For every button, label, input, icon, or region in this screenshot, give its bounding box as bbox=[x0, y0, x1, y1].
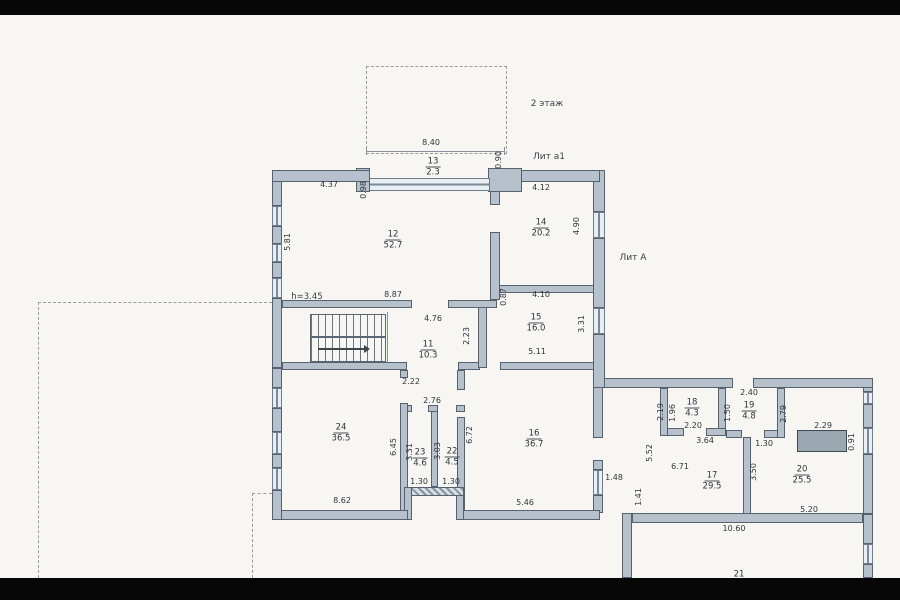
built-in-cabinet bbox=[797, 430, 847, 452]
dimension-label: 2.19 bbox=[657, 403, 665, 421]
window bbox=[863, 544, 873, 564]
window bbox=[272, 468, 282, 490]
room-label-20: 2025.5 bbox=[793, 457, 812, 486]
room-label-16: 1636.7 bbox=[525, 421, 544, 450]
dimension-label: 2.22 bbox=[402, 378, 420, 386]
room-area: 36.5 bbox=[332, 434, 351, 444]
dimension-label: 5.81 bbox=[284, 233, 292, 251]
wall bbox=[272, 368, 282, 388]
wall bbox=[458, 362, 480, 370]
wall bbox=[272, 454, 282, 468]
room-number: 24 bbox=[334, 424, 349, 434]
room-number: 11 bbox=[421, 341, 436, 351]
room-label-15: 1516.0 bbox=[527, 305, 546, 334]
dimension-label: 2.79 bbox=[780, 405, 788, 423]
room-number: 15 bbox=[529, 314, 544, 324]
wall bbox=[863, 454, 873, 514]
dimension-label: 4.12 bbox=[532, 184, 550, 192]
dimension-label: 3.50 bbox=[750, 463, 758, 481]
dimension-label: 1.41 bbox=[635, 488, 643, 506]
room-area: 16.0 bbox=[527, 324, 546, 334]
dimension-label: 10.60 bbox=[723, 525, 746, 533]
room-label-14: 1420.2 bbox=[532, 210, 551, 239]
room-label-12: 1252.7 bbox=[384, 222, 403, 251]
wall bbox=[272, 510, 408, 520]
dimension-label: 6.45 bbox=[390, 438, 398, 456]
wall bbox=[478, 300, 487, 368]
room-area: 36.7 bbox=[525, 440, 544, 450]
dimension-label: 0.98 bbox=[360, 181, 368, 199]
dimension-label: 2.40 bbox=[740, 389, 758, 397]
dimension-label: 1.30 bbox=[442, 478, 460, 486]
wall bbox=[500, 362, 600, 370]
wall bbox=[520, 170, 600, 182]
dimension-label: 4.10 bbox=[532, 291, 550, 299]
floor-plan: 2 этаж Лит а1 Лит А h=3.45 132.31252.714… bbox=[0, 0, 900, 600]
room-area: 29.5 bbox=[703, 482, 722, 492]
dimension-label: 1.50 bbox=[724, 404, 732, 422]
dimension-label: 8.62 bbox=[333, 497, 351, 505]
room-area: 25.5 bbox=[793, 476, 812, 486]
wall bbox=[457, 370, 465, 390]
window bbox=[863, 428, 873, 454]
window bbox=[593, 308, 605, 334]
dimension-label: 3.64 bbox=[696, 437, 714, 445]
dimension-label: 2.20 bbox=[684, 422, 702, 430]
room-number: 23 bbox=[413, 449, 428, 459]
wall bbox=[706, 428, 726, 436]
window bbox=[272, 278, 282, 298]
dimension-label: 1.96 bbox=[669, 404, 677, 422]
dimension-label: 4.76 bbox=[424, 315, 442, 323]
dimension-label: 6.72 bbox=[466, 426, 474, 444]
boundary-dashed-line bbox=[38, 302, 272, 303]
room-number: 19 bbox=[742, 402, 757, 412]
dimension-label: 5.46 bbox=[516, 499, 534, 507]
room-label-11: 1110.3 bbox=[419, 332, 438, 361]
dimension-label: 4.90 bbox=[573, 217, 581, 235]
wall bbox=[488, 168, 522, 192]
floor-note: 2 этаж bbox=[531, 99, 563, 109]
room-area: 2.3 bbox=[426, 168, 441, 178]
letterbox-top-bar bbox=[0, 0, 900, 15]
building-letter-a: Лит А bbox=[620, 253, 647, 263]
dimension-label: 8.40 bbox=[422, 139, 440, 147]
wall bbox=[632, 513, 863, 523]
room-label-23: 234.6 bbox=[413, 440, 428, 469]
dimension-label: 0.87 bbox=[500, 288, 508, 306]
wall bbox=[272, 298, 282, 368]
dimension-label: 0.91 bbox=[848, 433, 856, 451]
wall bbox=[753, 378, 873, 388]
wall bbox=[456, 405, 465, 412]
dimension-label: 5.20 bbox=[800, 506, 818, 514]
dimension-label: 5.11 bbox=[528, 348, 546, 356]
room-area: 4.8 bbox=[742, 412, 757, 422]
boundary-dashed-line bbox=[252, 493, 272, 494]
room-label-24: 2436.5 bbox=[332, 415, 351, 444]
wall bbox=[272, 408, 282, 432]
dimension-label: 5.52 bbox=[646, 444, 654, 462]
dimension-label: 6.71 bbox=[671, 463, 689, 471]
room-label-13: 132.3 bbox=[426, 149, 441, 178]
room-label-17: 1729.5 bbox=[703, 463, 722, 492]
wall bbox=[593, 334, 605, 388]
window bbox=[368, 178, 490, 191]
dimension-label: 0.90 bbox=[495, 151, 503, 169]
dimension-label: 3.31 bbox=[406, 443, 414, 461]
wall bbox=[282, 362, 407, 370]
room-number: 20 bbox=[795, 466, 810, 476]
room-area: 4.5 bbox=[445, 458, 460, 468]
window bbox=[272, 388, 282, 408]
stairs-landing-line bbox=[311, 336, 385, 338]
room-label-18: 184.3 bbox=[685, 390, 700, 419]
staircase bbox=[310, 314, 386, 362]
window bbox=[272, 244, 282, 262]
boundary-dashed-line bbox=[38, 302, 39, 578]
wall bbox=[863, 404, 873, 428]
window bbox=[272, 432, 282, 454]
room-number: 16 bbox=[527, 430, 542, 440]
window bbox=[272, 206, 282, 226]
dimension-label: 4.37 bbox=[320, 181, 338, 189]
dimension-label: 3.03 bbox=[434, 442, 442, 460]
letterbox-bottom-bar bbox=[0, 578, 900, 600]
room-number: 14 bbox=[534, 219, 549, 229]
room-area: 20.2 bbox=[532, 229, 551, 239]
wall bbox=[593, 238, 605, 308]
wall bbox=[458, 510, 600, 520]
room-area: 52.7 bbox=[384, 241, 403, 251]
wall bbox=[863, 514, 873, 544]
dimension-label: 8.87 bbox=[384, 291, 402, 299]
plan-line bbox=[387, 312, 388, 362]
room-area: 4.6 bbox=[413, 459, 428, 469]
wall bbox=[863, 564, 873, 578]
hatched-wall bbox=[404, 487, 464, 496]
wall bbox=[593, 460, 603, 470]
room-number: 22 bbox=[445, 448, 460, 458]
boundary-dashed-line bbox=[252, 493, 253, 578]
ceiling-height-note: h=3.45 bbox=[291, 292, 322, 302]
room-number: 13 bbox=[426, 158, 441, 168]
wall bbox=[448, 300, 497, 308]
wall bbox=[272, 226, 282, 244]
room-number: 12 bbox=[386, 231, 401, 241]
dimension-label: 2.29 bbox=[814, 422, 832, 430]
wall bbox=[272, 490, 282, 520]
dimension-label: 2.23 bbox=[463, 327, 471, 345]
room-number: 18 bbox=[685, 399, 700, 409]
wall bbox=[622, 513, 632, 578]
room-area: 10.3 bbox=[419, 351, 438, 361]
dimension-label: 2.76 bbox=[423, 397, 441, 405]
dimension-label: 1.30 bbox=[410, 478, 428, 486]
wall bbox=[272, 262, 282, 278]
wall bbox=[428, 405, 438, 412]
wall bbox=[726, 430, 742, 438]
room-area: 4.3 bbox=[685, 409, 700, 419]
stairs-direction-arrow bbox=[318, 348, 364, 350]
wall bbox=[603, 378, 733, 388]
window bbox=[593, 470, 603, 495]
dimension-label: 3.31 bbox=[578, 315, 586, 333]
window bbox=[863, 392, 873, 404]
dimension-label: 1.30 bbox=[755, 440, 773, 448]
window bbox=[593, 212, 605, 238]
building-letter-a1: Лит а1 bbox=[533, 152, 565, 162]
dimension-label: 1.48 bbox=[605, 474, 623, 482]
room-label-22: 224.5 bbox=[445, 439, 460, 468]
room-number: 17 bbox=[705, 472, 720, 482]
